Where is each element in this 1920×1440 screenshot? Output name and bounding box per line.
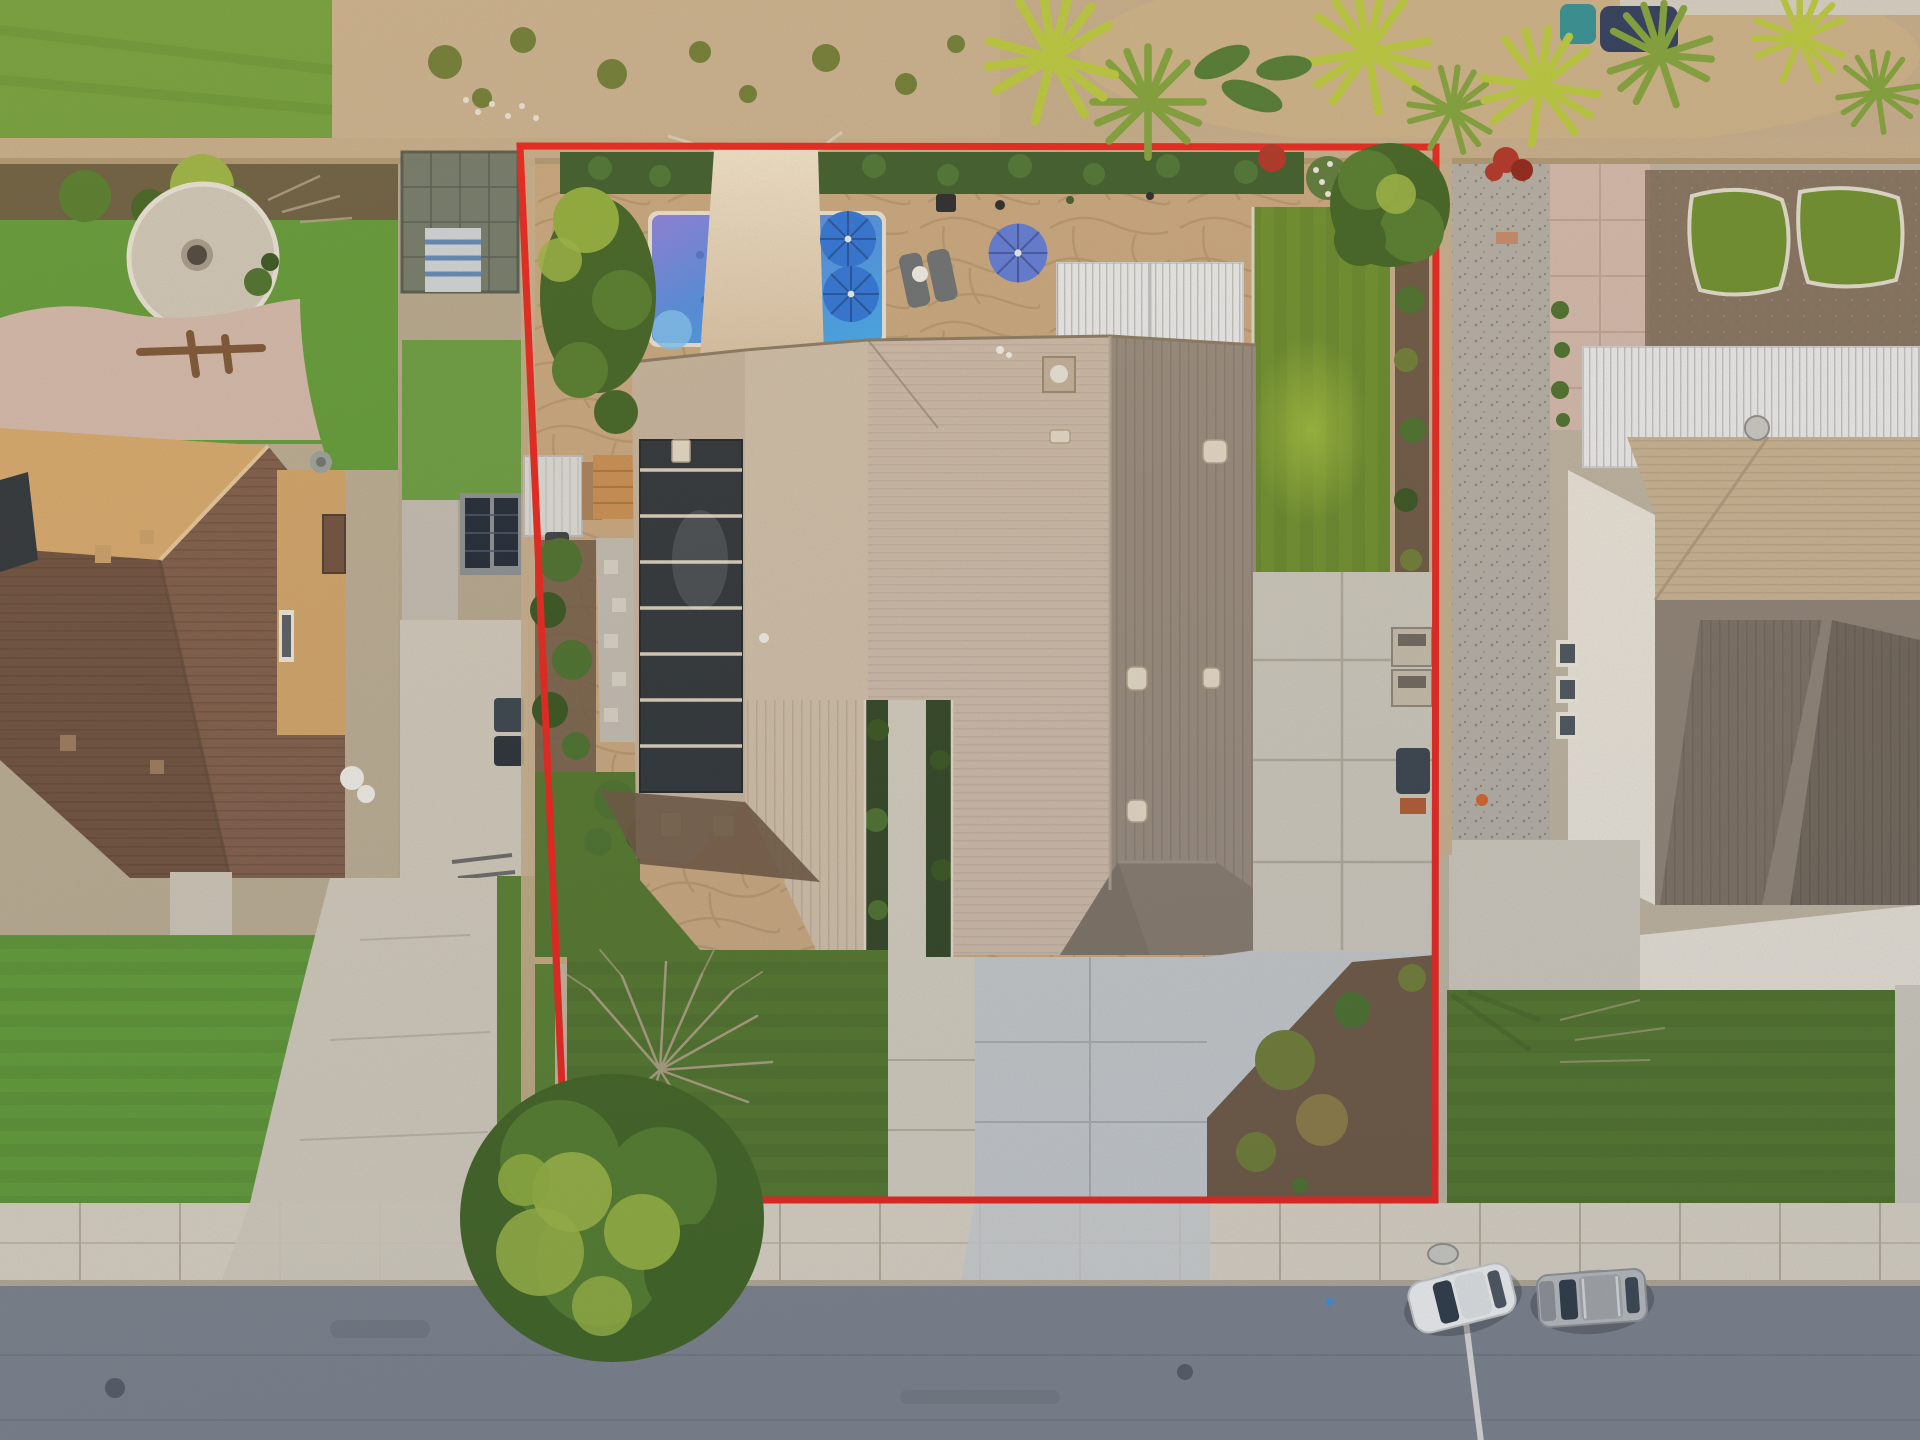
aerial-photo [0, 0, 1920, 1440]
aerial-scene [0, 0, 1920, 1440]
photo-grain [0, 0, 1920, 1440]
